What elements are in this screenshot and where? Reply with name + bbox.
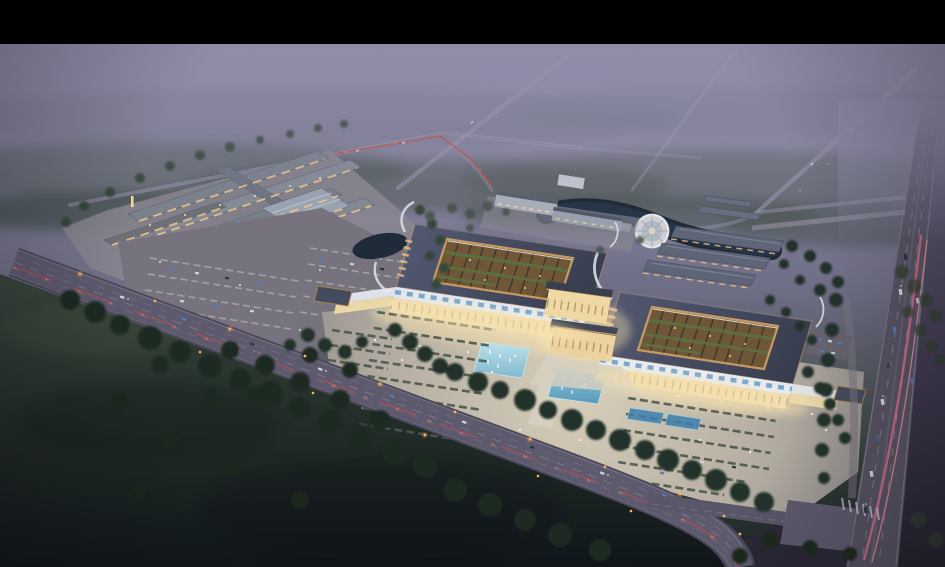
vignette bbox=[0, 44, 945, 567]
aerial-rendering: Dusk aerial rendering of a large illumin… bbox=[0, 0, 945, 567]
rendering-canvas: Dusk aerial rendering of a large illumin… bbox=[0, 0, 945, 567]
letterbox-bar-top bbox=[0, 0, 945, 44]
